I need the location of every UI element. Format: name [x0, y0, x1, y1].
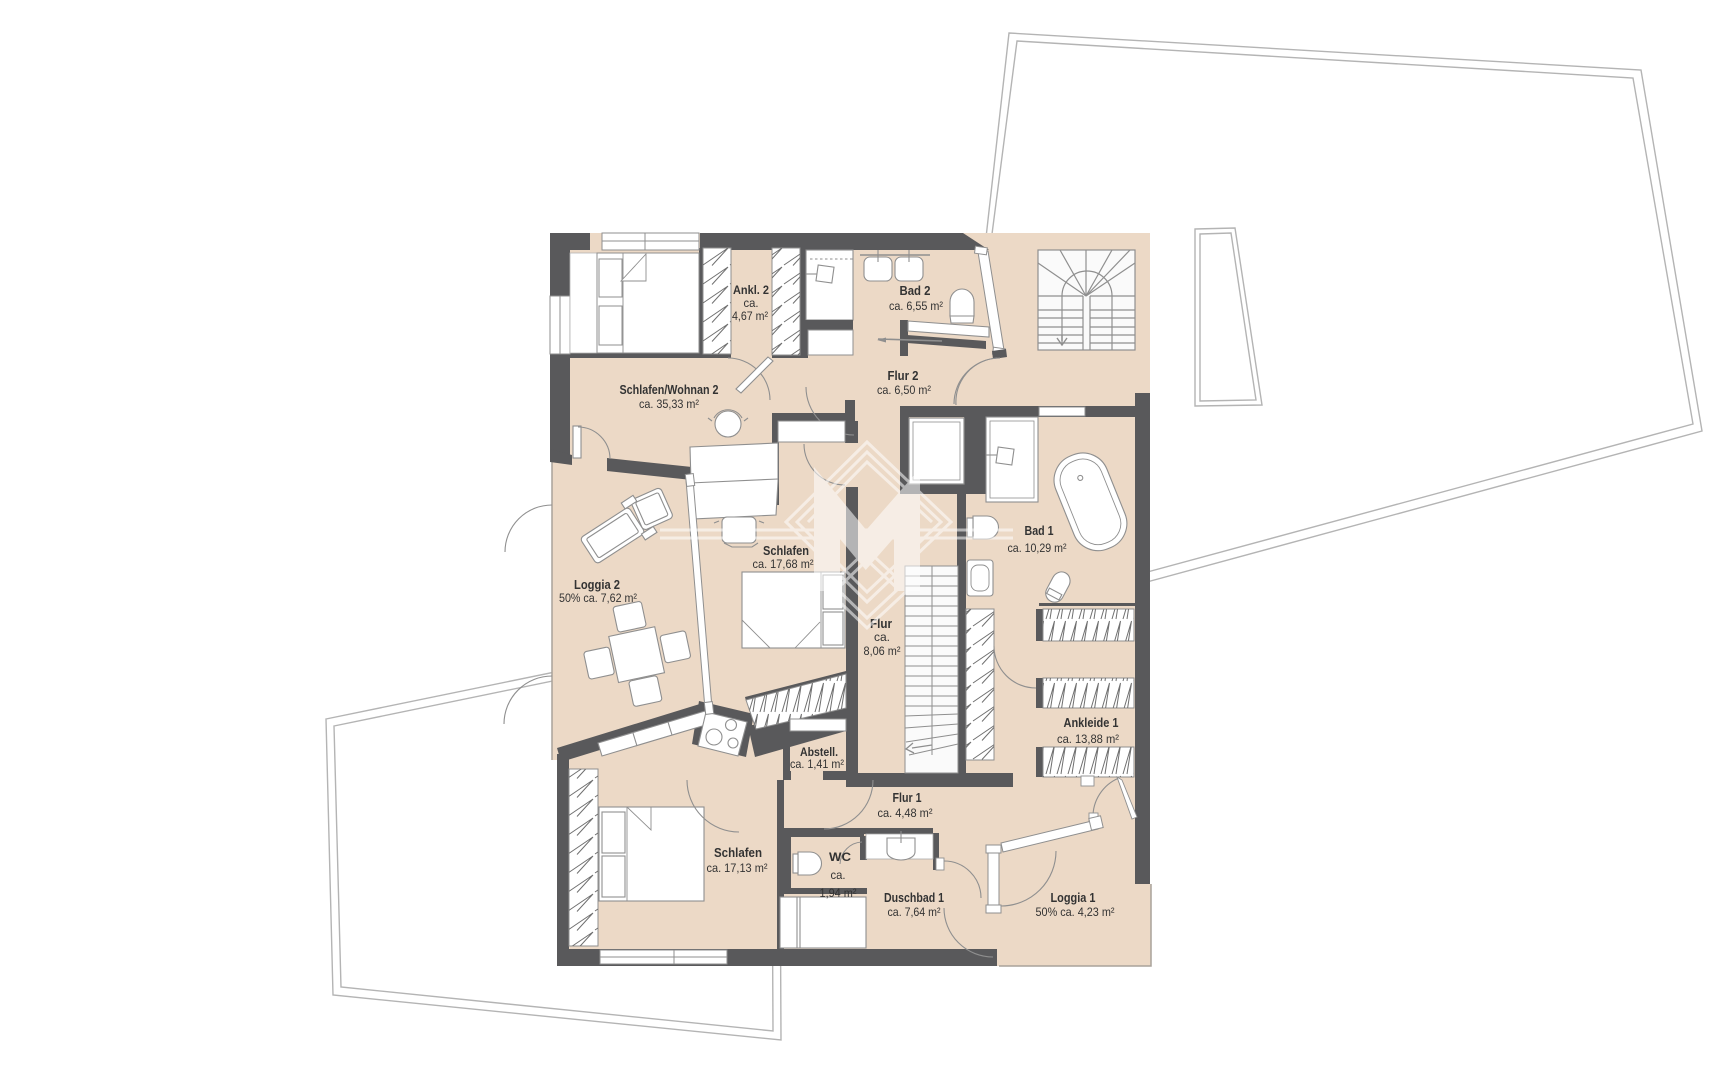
svg-text:50% ca. 4,23 m²: 50% ca. 4,23 m² [1036, 905, 1115, 919]
svg-text:ca. 17,68 m²: ca. 17,68 m² [753, 557, 814, 571]
svg-text:ca. 7,64 m²: ca. 7,64 m² [888, 905, 941, 919]
svg-text:Loggia 1: Loggia 1 [1051, 890, 1096, 905]
svg-text:WC: WC [829, 850, 851, 864]
svg-text:Duschbad 1: Duschbad 1 [884, 890, 944, 905]
svg-text:8,06 m²: 8,06 m² [864, 644, 901, 658]
svg-text:ca.: ca. [744, 296, 759, 310]
svg-text:ca. 35,33 m²: ca. 35,33 m² [639, 397, 699, 411]
svg-text:1,94 m²: 1,94 m² [820, 886, 857, 900]
svg-text:Schlafen: Schlafen [763, 543, 809, 558]
svg-text:ca. 6,50 m²: ca. 6,50 m² [877, 383, 931, 397]
svg-text:Ankleide 1: Ankleide 1 [1064, 715, 1119, 730]
svg-text:4,67 m²: 4,67 m² [732, 309, 768, 323]
svg-text:Schlafen: Schlafen [714, 845, 762, 860]
svg-text:Bad 1: Bad 1 [1025, 523, 1054, 538]
svg-text:ca. 17,13 m²: ca. 17,13 m² [707, 861, 768, 875]
svg-text:Schlafen/Wohnan 2: Schlafen/Wohnan 2 [620, 382, 719, 397]
svg-text:Flur 1: Flur 1 [893, 790, 922, 805]
svg-text:ca.: ca. [874, 630, 890, 644]
svg-text:Loggia 2: Loggia 2 [574, 577, 620, 592]
svg-text:ca. 1,41 m²: ca. 1,41 m² [790, 757, 844, 771]
svg-text:ca. 4,48 m²: ca. 4,48 m² [878, 806, 933, 820]
svg-text:Bad 2: Bad 2 [900, 283, 931, 298]
svg-text:Ankl. 2: Ankl. 2 [733, 283, 769, 297]
svg-text:ca. 10,29 m²: ca. 10,29 m² [1008, 541, 1067, 555]
svg-text:ca.: ca. [831, 868, 846, 882]
svg-text:ca. 13,88 m²: ca. 13,88 m² [1057, 732, 1119, 746]
svg-text:50% ca. 7,62 m²: 50% ca. 7,62 m² [559, 591, 637, 605]
svg-text:Flur 2: Flur 2 [888, 368, 919, 383]
svg-text:ca. 6,55 m²: ca. 6,55 m² [889, 299, 943, 313]
